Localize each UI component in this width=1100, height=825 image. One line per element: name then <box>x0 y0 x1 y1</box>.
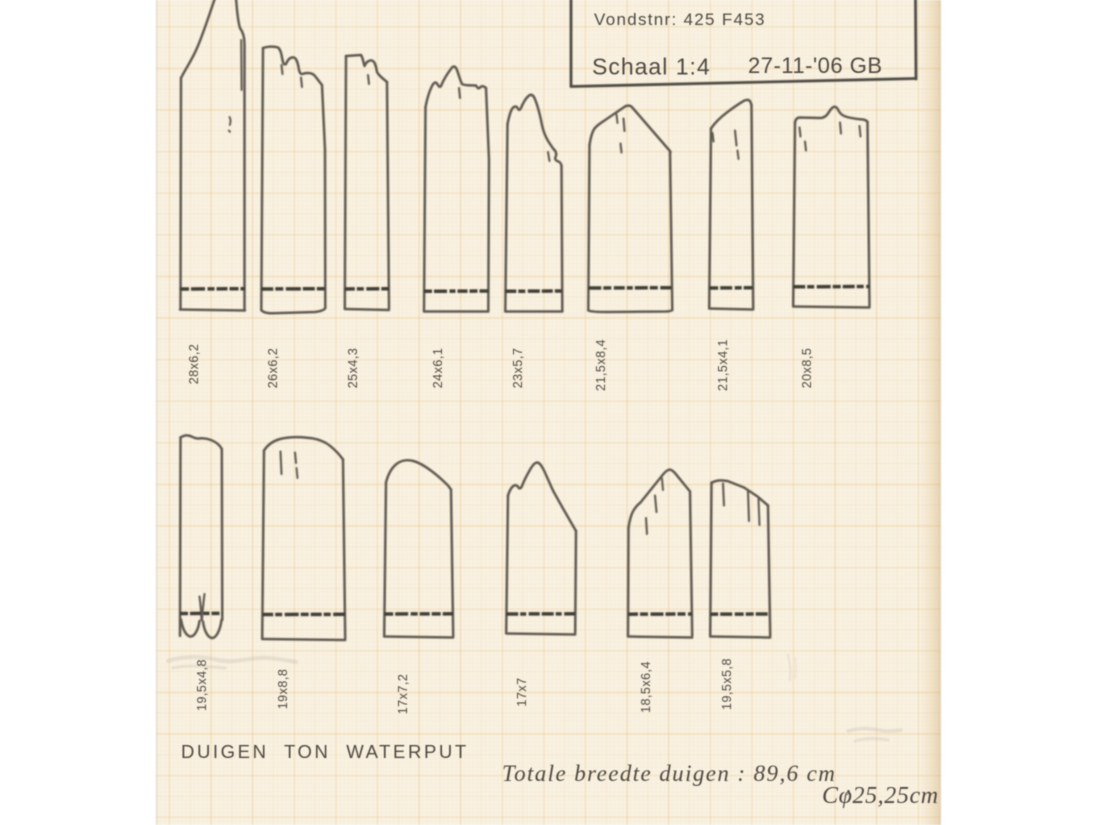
svg-text:25x4,3: 25x4,3 <box>346 348 360 389</box>
svg-text:Vondstnr: 425 F453: Vondstnr: 425 F453 <box>594 10 766 29</box>
svg-text:28x6,2: 28x6,2 <box>187 344 201 385</box>
svg-text:19,5x5,8: 19,5x5,8 <box>720 658 734 710</box>
svg-text:24x6,1: 24x6,1 <box>431 348 445 389</box>
svg-text:19,5x4,8: 19,5x4,8 <box>195 659 209 711</box>
svg-text:Schaal 1:4: Schaal 1:4 <box>592 54 711 80</box>
svg-text:21,5x4,1: 21,5x4,1 <box>716 339 730 391</box>
svg-text:Cφ25,25cm: Cφ25,25cm <box>822 783 939 809</box>
svg-text:19x8,8: 19x8,8 <box>276 669 290 710</box>
svg-text:21,5x8,4: 21,5x8,4 <box>594 339 608 391</box>
svg-text:27-11-'06 GB: 27-11-'06 GB <box>748 53 883 78</box>
svg-text:18,5x6,4: 18,5x6,4 <box>639 661 653 713</box>
svg-text:23x5,7: 23x5,7 <box>511 348 525 389</box>
svg-text:DUIGEN TON WATERPUT: DUIGEN TON WATERPUT <box>181 741 469 762</box>
svg-text:17x7: 17x7 <box>515 677 529 706</box>
svg-text:20x8,5: 20x8,5 <box>800 348 814 389</box>
svg-text:26x6,2: 26x6,2 <box>266 348 280 389</box>
svg-text:Totale breedte duigen : 89,6 c: Totale breedte duigen : 89,6 cm <box>502 761 836 786</box>
svg-text:17x7,2: 17x7,2 <box>396 674 410 715</box>
